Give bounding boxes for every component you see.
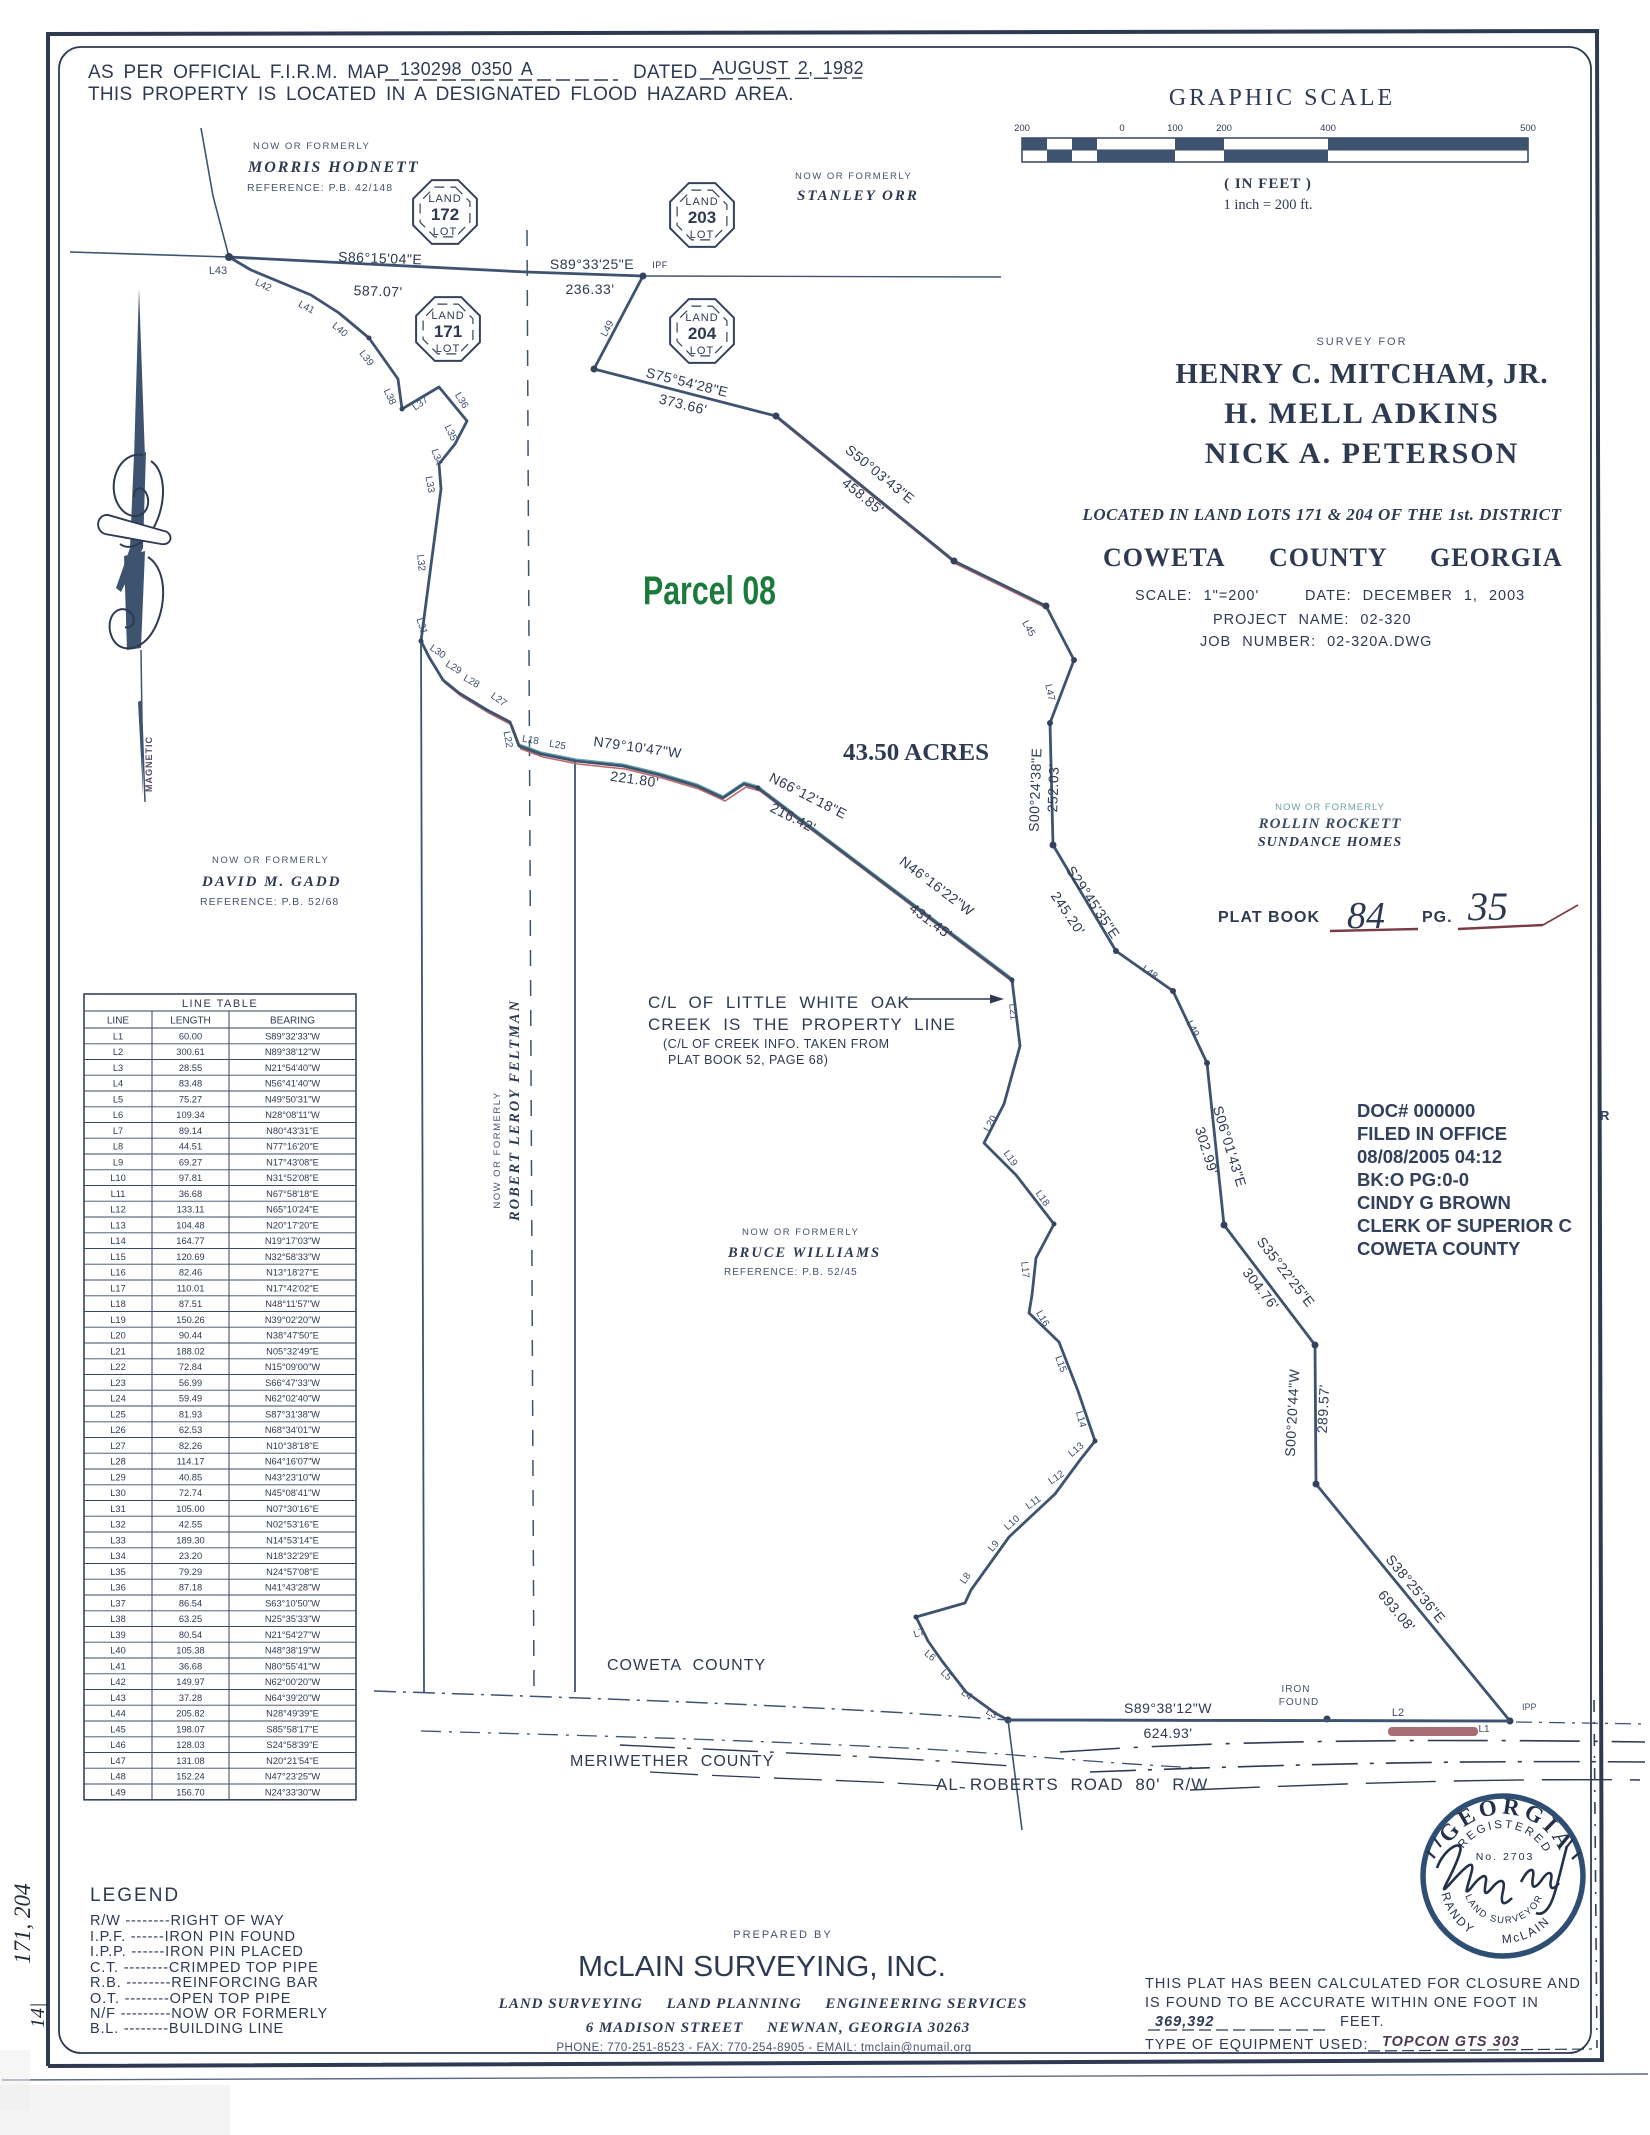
svg-text:164.77: 164.77	[176, 1236, 204, 1246]
svg-text:I.P.F. ------IRON PIN FOUND: I.P.F. ------IRON PIN FOUND	[90, 1929, 296, 1945]
svg-text:R/W --------RIGHT OF WAY: R/W --------RIGHT OF WAY	[90, 1913, 285, 1929]
svg-text:189.30: 189.30	[176, 1535, 204, 1545]
svg-text:82.46: 82.46	[179, 1268, 202, 1278]
svg-text:IRON: IRON	[1282, 1684, 1311, 1695]
svg-text:L25: L25	[110, 1409, 126, 1419]
svg-text:C/L OF LITTLE WHITE OAK: C/L OF LITTLE WHITE OAK	[648, 993, 910, 1012]
svg-text:35: 35	[1467, 884, 1508, 929]
svg-text:198.07: 198.07	[176, 1724, 204, 1734]
svg-text:L46: L46	[110, 1740, 126, 1750]
svg-text:L21: L21	[110, 1346, 126, 1356]
svg-text:DATED: DATED	[633, 62, 697, 83]
svg-text:100: 100	[1167, 123, 1183, 134]
svg-text:N21°54'27"W: N21°54'27"W	[265, 1630, 321, 1640]
svg-text:S86°15'04"E: S86°15'04"E	[338, 249, 423, 268]
svg-text:L15: L15	[110, 1252, 126, 1262]
svg-text:N68°34'01"W: N68°34'01"W	[265, 1425, 321, 1435]
svg-text:N13°18'27"E: N13°18'27"E	[266, 1268, 319, 1278]
svg-text:DATE: DECEMBER 1, 2003: DATE: DECEMBER 1, 2003	[1305, 588, 1525, 604]
svg-text:N20°21'54"E: N20°21'54"E	[266, 1756, 319, 1766]
svg-text:L33: L33	[110, 1535, 126, 1545]
svg-text:ROLLIN ROCKETT: ROLLIN ROCKETT	[1258, 816, 1402, 832]
svg-text:0: 0	[1119, 123, 1124, 134]
svg-text:120.69: 120.69	[176, 1252, 204, 1262]
svg-text:FOUND: FOUND	[1279, 1697, 1320, 1708]
svg-text:CREEK IS THE PROPERTY LINE: CREEK IS THE PROPERTY LINE	[648, 1015, 956, 1034]
svg-text:L17: L17	[1018, 1261, 1030, 1279]
svg-text:LAND: LAND	[428, 193, 461, 205]
svg-text:REFERENCE: P.B. 52/68: REFERENCE: P.B. 52/68	[200, 896, 339, 908]
svg-text:79.29: 79.29	[179, 1567, 202, 1577]
svg-text:SURVEY FOR: SURVEY FOR	[1316, 336, 1407, 348]
svg-text:40.85: 40.85	[179, 1472, 202, 1482]
svg-text:IPF: IPF	[652, 260, 668, 270]
svg-text:LAND: LAND	[685, 196, 718, 208]
svg-text:LINE TABLE: LINE TABLE	[182, 998, 258, 1010]
svg-text:109.34: 109.34	[176, 1110, 204, 1120]
svg-text:N05°32'49"E: N05°32'49"E	[266, 1346, 319, 1356]
svg-text:105.00: 105.00	[176, 1504, 204, 1514]
svg-text:N17°42'02"E: N17°42'02"E	[266, 1283, 319, 1293]
svg-text:87.18: 87.18	[179, 1583, 202, 1593]
svg-text:L38: L38	[110, 1614, 126, 1624]
svg-text:171, 204: 171, 204	[10, 1884, 35, 1965]
svg-text:N02°53'16"E: N02°53'16"E	[266, 1520, 319, 1530]
svg-text:252.03': 252.03'	[1044, 763, 1062, 813]
svg-text:MAGNETIC: MAGNETIC	[144, 736, 154, 792]
svg-text:L32: L32	[110, 1520, 126, 1530]
svg-text:N07°30'16"E: N07°30'16"E	[266, 1504, 319, 1514]
svg-text:N28°49'39"E: N28°49'39"E	[266, 1709, 319, 1719]
svg-text:L30: L30	[110, 1488, 126, 1498]
svg-text:O.T. --------OPEN TOP PIPE: O.T. --------OPEN TOP PIPE	[90, 1991, 291, 2007]
svg-text:N62°00'20"W: N62°00'20"W	[265, 1677, 321, 1687]
svg-text:JOB NUMBER: 02-320A.DWG: JOB NUMBER: 02-320A.DWG	[1200, 634, 1432, 650]
svg-text:C.T. --------CRIMPED TOP PIPE: C.T. --------CRIMPED TOP PIPE	[90, 1960, 319, 1976]
svg-text:87.51: 87.51	[179, 1299, 202, 1309]
svg-text:R: R	[1600, 1108, 1610, 1123]
svg-text:L1: L1	[1478, 1724, 1490, 1735]
svg-text:624.93': 624.93'	[1144, 1725, 1193, 1741]
svg-text:L1: L1	[113, 1031, 123, 1041]
svg-text:N65°10'24"E: N65°10'24"E	[266, 1205, 319, 1215]
svg-text:205.82: 205.82	[176, 1709, 204, 1719]
svg-text:188.02: 188.02	[176, 1346, 204, 1356]
svg-text:AS PER OFFICIAL F.I.R.M. MAP: AS PER OFFICIAL F.I.R.M. MAP	[88, 62, 389, 83]
svg-text:L3: L3	[113, 1063, 123, 1073]
svg-text:N19°17'03"W: N19°17'03"W	[265, 1236, 321, 1246]
svg-text:N62°02'40"W: N62°02'40"W	[265, 1394, 321, 1404]
svg-text:L23: L23	[110, 1378, 126, 1388]
svg-text:BK:O PG:0-0: BK:O PG:0-0	[1357, 1169, 1469, 1190]
svg-text:89.14: 89.14	[179, 1126, 202, 1136]
svg-text:28.55: 28.55	[179, 1063, 202, 1073]
svg-text:56.99: 56.99	[179, 1378, 202, 1388]
svg-text:14|: 14|	[27, 2003, 49, 2029]
svg-text:L17: L17	[110, 1283, 126, 1293]
svg-text:S85°58'17"E: S85°58'17"E	[266, 1724, 318, 1734]
svg-text:IS FOUND TO BE ACCURATE WITH: IS FOUND TO BE ACCURATE WITHIN ONE FOOT …	[1145, 1995, 1539, 2011]
svg-text:REFERENCE: P.B. 42/148: REFERENCE: P.B. 42/148	[247, 182, 393, 194]
svg-text:L18: L18	[110, 1299, 126, 1309]
svg-text:PG.: PG.	[1422, 909, 1453, 926]
svg-text:NOW OR FORMERLY: NOW OR FORMERLY	[253, 141, 370, 152]
svg-text:I.P.P. ------IRON PIN PLACED: I.P.P. ------IRON PIN PLACED	[90, 1944, 304, 1960]
svg-text:THIS PROPERTY IS LOCATED IN A: THIS PROPERTY IS LOCATED IN A DESIGNATED…	[88, 84, 794, 105]
svg-text:L31: L31	[110, 1504, 126, 1514]
svg-text:82.26: 82.26	[179, 1441, 202, 1451]
svg-text:156.70: 156.70	[176, 1787, 204, 1797]
svg-text:152.24: 152.24	[176, 1772, 204, 1782]
svg-text:86.54: 86.54	[179, 1598, 202, 1608]
svg-text:72.84: 72.84	[179, 1362, 202, 1372]
svg-text:SCALE: 1"=200': SCALE: 1"=200'	[1135, 588, 1259, 604]
svg-text:L16: L16	[110, 1268, 126, 1278]
svg-text:MORRIS HODNETT: MORRIS HODNETT	[247, 159, 420, 176]
svg-text:149.97: 149.97	[176, 1677, 204, 1687]
svg-text:S00°24'38"E: S00°24'38"E	[1026, 748, 1045, 833]
svg-text:L36: L36	[110, 1583, 126, 1593]
svg-text:AUGUST 2, 1982: AUGUST 2, 1982	[712, 58, 864, 78]
svg-text:DOC# 000000: DOC# 000000	[1357, 1100, 1475, 1121]
svg-text:L11: L11	[111, 1189, 126, 1199]
svg-text:( IN FEET ): ( IN FEET )	[1224, 176, 1312, 192]
svg-text:130298 0350 A: 130298 0350 A	[400, 59, 533, 79]
svg-text:CLERK OF SUPERIOR C: CLERK OF SUPERIOR C	[1357, 1215, 1572, 1236]
svg-text:N47°23'25"W: N47°23'25"W	[265, 1772, 321, 1782]
svg-text:L14: L14	[110, 1236, 126, 1246]
svg-text:N/F ---------NOW OR FORMERLY: N/F ---------NOW OR FORMERLY	[90, 2006, 328, 2022]
svg-text:LINE: LINE	[107, 1016, 130, 1027]
svg-text:L44: L44	[110, 1709, 126, 1719]
svg-text:L37: L37	[110, 1598, 126, 1608]
svg-text:PROJECT NAME: 02-320: PROJECT NAME: 02-320	[1213, 612, 1412, 628]
svg-text:105.38: 105.38	[176, 1646, 204, 1656]
svg-text:L35: L35	[110, 1567, 126, 1577]
svg-text:N38°47'50"E: N38°47'50"E	[266, 1331, 319, 1341]
svg-text:LOT: LOT	[436, 343, 460, 355]
svg-text:N31°52'08"E: N31°52'08"E	[266, 1173, 319, 1183]
svg-text:NOW OR FORMERLY: NOW OR FORMERLY	[212, 855, 329, 866]
svg-text:BEARING: BEARING	[270, 1016, 315, 1027]
svg-text:L9: L9	[113, 1157, 123, 1167]
svg-text:LEGEND: LEGEND	[90, 1885, 180, 1906]
svg-text:PREPARED BY: PREPARED BY	[733, 1929, 832, 1941]
svg-text:N41°43'28"W: N41°43'28"W	[265, 1583, 321, 1593]
svg-text:400: 400	[1320, 123, 1336, 134]
svg-text:CINDY G BROWN: CINDY G BROWN	[1357, 1192, 1511, 1213]
svg-text:S89°32'33"W: S89°32'33"W	[265, 1031, 320, 1041]
svg-text:587.07': 587.07'	[353, 282, 403, 300]
svg-text:L27: L27	[110, 1441, 126, 1451]
svg-text:L8: L8	[113, 1142, 123, 1152]
svg-text:289.57': 289.57'	[1314, 1384, 1333, 1434]
svg-text:37.28: 37.28	[179, 1693, 202, 1703]
svg-text:N10°38'18"E: N10°38'18"E	[266, 1441, 319, 1451]
svg-text:LAND: LAND	[685, 312, 718, 324]
svg-text:80.54: 80.54	[179, 1630, 202, 1640]
svg-text:N48°38'19"W: N48°38'19"W	[265, 1646, 321, 1656]
svg-text:131.08: 131.08	[176, 1756, 204, 1766]
svg-text:LOT: LOT	[690, 345, 714, 357]
svg-text:NOW OR FORMERLY: NOW OR FORMERLY	[492, 1091, 503, 1208]
svg-text:S66°47'33"W: S66°47'33"W	[265, 1378, 320, 1388]
svg-text:TYPE OF EQUIPMENT USED:: TYPE OF EQUIPMENT USED:	[1145, 2037, 1368, 2053]
svg-text:N25°35'33"W: N25°35'33"W	[265, 1614, 321, 1624]
svg-text:N39°02'20"W: N39°02'20"W	[265, 1315, 321, 1325]
svg-text:MERIWETHER COUNTY: MERIWETHER COUNTY	[570, 1753, 774, 1770]
svg-text:N18°32'29"E: N18°32'29"E	[266, 1551, 319, 1561]
svg-text:L49: L49	[110, 1787, 126, 1797]
svg-text:L43: L43	[209, 265, 227, 277]
svg-text:L40: L40	[110, 1646, 126, 1656]
svg-text:REFERENCE: P.B. 52/45: REFERENCE: P.B. 52/45	[724, 1267, 858, 1278]
svg-text:N80°55'41"W: N80°55'41"W	[265, 1661, 321, 1671]
svg-text:SUNDANCE HOMES: SUNDANCE HOMES	[1258, 835, 1402, 850]
svg-text:ROBERT LEROY FELTMAN: ROBERT LEROY FELTMAN	[507, 999, 523, 1222]
svg-text:N77°16'20"E: N77°16'20"E	[266, 1142, 319, 1152]
svg-text:200: 200	[1216, 123, 1232, 134]
svg-text:L39: L39	[110, 1630, 126, 1640]
svg-text:GRAPHIC SCALE: GRAPHIC SCALE	[1169, 85, 1395, 111]
svg-text:TOPCON GTS 303: TOPCON GTS 303	[1382, 2034, 1520, 2050]
svg-text:N24°33'30"W: N24°33'30"W	[265, 1787, 321, 1797]
svg-text:N21°54'40"W: N21°54'40"W	[265, 1063, 321, 1073]
svg-text:150.26: 150.26	[176, 1315, 204, 1325]
svg-text:90.44: 90.44	[179, 1331, 202, 1341]
svg-text:83.48: 83.48	[179, 1079, 202, 1089]
svg-text:204: 204	[688, 324, 717, 343]
svg-text:L24: L24	[110, 1394, 126, 1404]
svg-text:300.61: 300.61	[176, 1047, 204, 1057]
svg-text:COUNTY: COUNTY	[1269, 543, 1388, 572]
svg-text:L29: L29	[110, 1472, 126, 1482]
svg-text:N32°58'33"W: N32°58'33"W	[265, 1252, 321, 1262]
svg-text:LENGTH: LENGTH	[170, 1016, 211, 1027]
svg-text:L10: L10	[110, 1173, 126, 1183]
svg-text:171: 171	[434, 322, 462, 341]
svg-text:L7: L7	[113, 1126, 123, 1136]
svg-text:N14°53'14"E: N14°53'14"E	[266, 1535, 319, 1545]
svg-text:N15°09'00"W: N15°09'00"W	[265, 1362, 321, 1372]
svg-text:LAND SURVEYING LAND PLANNI: LAND SURVEYING LAND PLANNING ENGINEERING…	[498, 1996, 1028, 2012]
svg-text:IPP: IPP	[1522, 1702, 1537, 1712]
svg-text:236.33': 236.33'	[566, 281, 615, 297]
svg-text:(C/L OF CREEK INFO. TAKEN FROM: (C/L OF CREEK INFO. TAKEN FROM	[663, 1037, 890, 1051]
svg-text:36.68: 36.68	[179, 1189, 202, 1199]
svg-text:NOW OR FORMERLY: NOW OR FORMERLY	[742, 1227, 859, 1238]
svg-text:N80°43'31"E: N80°43'31"E	[266, 1126, 319, 1136]
svg-text:COWETA COUNTY: COWETA COUNTY	[1357, 1238, 1521, 1259]
svg-text:LAND: LAND	[431, 310, 464, 322]
svg-text:LOCATED IN LAND LOTS 171 & 204: LOCATED IN LAND LOTS 171 & 204 OF THE 1s…	[1081, 505, 1561, 524]
svg-text:L41: L41	[110, 1661, 126, 1671]
svg-text:59.49: 59.49	[179, 1394, 202, 1404]
svg-text:L12: L12	[110, 1205, 126, 1215]
svg-text:N64°16'07"W: N64°16'07"W	[265, 1457, 321, 1467]
svg-text:69.27: 69.27	[179, 1157, 202, 1167]
svg-text:L6: L6	[113, 1110, 123, 1120]
svg-text:128.03: 128.03	[176, 1740, 204, 1750]
svg-text:NOW OR FORMERLY: NOW OR FORMERLY	[795, 171, 912, 182]
svg-text:COWETA: COWETA	[1103, 543, 1226, 572]
svg-text:No. 2703: No. 2703	[1476, 1851, 1535, 1863]
svg-text:PLAT BOOK: PLAT BOOK	[1218, 909, 1320, 926]
svg-text:STANLEY ORR: STANLEY ORR	[797, 188, 919, 204]
svg-text:62.53: 62.53	[179, 1425, 202, 1435]
svg-text:203: 203	[688, 208, 716, 227]
svg-text:75.27: 75.27	[179, 1094, 202, 1104]
svg-text:H. MELL ADKINS: H. MELL ADKINS	[1224, 397, 1500, 430]
svg-text:S89°33'25"E: S89°33'25"E	[550, 256, 634, 272]
svg-text:B.L. --------BUILDING LINE: B.L. --------BUILDING LINE	[90, 2021, 284, 2037]
svg-text:N49°50'31"W: N49°50'31"W	[265, 1094, 321, 1104]
svg-text:N45°08'41"W: N45°08'41"W	[265, 1488, 321, 1498]
svg-text:500: 500	[1520, 123, 1536, 134]
svg-text:LOT: LOT	[690, 229, 714, 241]
svg-text:L22: L22	[110, 1362, 126, 1372]
svg-text:N43°23'10"W: N43°23'10"W	[265, 1472, 321, 1482]
svg-text:S63°10'50"W: S63°10'50"W	[265, 1598, 320, 1608]
svg-text:L43: L43	[110, 1693, 126, 1703]
svg-text:COWETA COUNTY: COWETA COUNTY	[607, 1657, 766, 1674]
svg-text:36.68: 36.68	[179, 1661, 202, 1671]
svg-text:McLAIN SURVEYING, INC.: McLAIN SURVEYING, INC.	[578, 1951, 946, 1983]
svg-text:N64°39'20"W: N64°39'20"W	[265, 1693, 321, 1703]
svg-text:N20°17'20"E: N20°17'20"E	[266, 1220, 319, 1230]
svg-text:L32: L32	[414, 554, 427, 572]
svg-text:L47: L47	[110, 1756, 126, 1766]
svg-text:N17°43'08"E: N17°43'08"E	[266, 1157, 319, 1167]
svg-text:L2: L2	[113, 1047, 123, 1057]
svg-text:N56°41'40"W: N56°41'40"W	[265, 1079, 321, 1089]
svg-text:172: 172	[431, 205, 459, 224]
svg-text:L21: L21	[1006, 1003, 1018, 1021]
svg-text:AL ROBERTS ROAD 80' R/W: AL ROBERTS ROAD 80' R/W	[936, 1775, 1208, 1794]
svg-text:DAVID M. GADD: DAVID M. GADD	[201, 874, 342, 890]
svg-text:PLAT BOOK 52, PAGE 68): PLAT BOOK 52, PAGE 68)	[668, 1053, 828, 1067]
svg-text:44.51: 44.51	[179, 1142, 202, 1152]
svg-text:60.00: 60.00	[179, 1031, 202, 1041]
svg-text:LOT: LOT	[433, 226, 457, 238]
svg-text:BRUCE WILLIAMS: BRUCE WILLIAMS	[727, 1245, 881, 1261]
svg-text:N24°57'08"E: N24°57'08"E	[266, 1567, 319, 1577]
svg-text:L2: L2	[1392, 1707, 1404, 1719]
svg-text:S89°38'12"W: S89°38'12"W	[1124, 1700, 1212, 1716]
svg-text:R.B. --------REINFORCING BAR: R.B. --------REINFORCING BAR	[90, 1975, 319, 1991]
svg-text:NICK A. PETERSON: NICK A. PETERSON	[1205, 437, 1520, 470]
svg-text:L19: L19	[110, 1315, 126, 1325]
svg-text:110.01: 110.01	[177, 1283, 205, 1293]
svg-text:N28°08'11"W: N28°08'11"W	[265, 1110, 320, 1120]
svg-text:N89°38'12"W: N89°38'12"W	[265, 1047, 321, 1057]
svg-text:GEORGIA: GEORGIA	[1430, 543, 1563, 572]
svg-text:1 inch = 200 ft.: 1 inch = 200 ft.	[1223, 197, 1312, 213]
svg-text:43.50 ACRES: 43.50 ACRES	[843, 740, 989, 766]
svg-text:THIS PLAT HAS BEEN CALCULATED: THIS PLAT HAS BEEN CALCULATED FOR CLOSUR…	[1145, 1976, 1581, 1992]
svg-text:23.20: 23.20	[179, 1551, 202, 1561]
svg-text:42.55: 42.55	[179, 1520, 202, 1530]
svg-text:133.11: 133.11	[177, 1205, 205, 1215]
svg-text:HENRY C. MITCHAM, JR.: HENRY C. MITCHAM, JR.	[1175, 358, 1548, 390]
svg-text:L42: L42	[110, 1677, 126, 1687]
svg-text:FILED IN OFFICE: FILED IN OFFICE	[1357, 1123, 1507, 1144]
svg-text:Parcel 08: Parcel 08	[643, 569, 776, 613]
svg-text:72.74: 72.74	[179, 1488, 202, 1498]
svg-text:6 MADISON STREET NEWNAN, G: 6 MADISON STREET NEWNAN, GEORGIA 30263	[586, 2020, 971, 2036]
svg-text:114.17: 114.17	[177, 1457, 205, 1467]
svg-text:PHONE: 770-251-8523 - FAX:: PHONE: 770-251-8523 - FAX: 770-254-8905 …	[556, 2042, 971, 2054]
svg-text:L34: L34	[110, 1551, 126, 1561]
svg-text:L4: L4	[113, 1079, 123, 1089]
svg-text:104.48: 104.48	[176, 1220, 204, 1230]
svg-text:08/08/2005 04:12: 08/08/2005 04:12	[1357, 1146, 1502, 1167]
svg-text:N67°58'18"E: N67°58'18"E	[266, 1189, 319, 1199]
svg-text:L26: L26	[110, 1425, 126, 1435]
svg-text:S87°31'38"W: S87°31'38"W	[265, 1409, 320, 1419]
svg-text:S24°58'39"E: S24°58'39"E	[266, 1740, 318, 1750]
svg-text:200: 200	[1014, 123, 1030, 134]
svg-text:L20: L20	[110, 1331, 126, 1341]
svg-text:L45: L45	[110, 1724, 126, 1734]
svg-text:369,392: 369,392	[1155, 2014, 1214, 2030]
svg-text:81.93: 81.93	[179, 1409, 202, 1419]
svg-text:97.81: 97.81	[179, 1173, 202, 1183]
svg-text:L5: L5	[113, 1094, 123, 1104]
svg-text:N48°11'57"W: N48°11'57"W	[265, 1299, 320, 1309]
svg-text:NOW OR FORMERLY: NOW OR FORMERLY	[1275, 802, 1385, 813]
svg-text:L28: L28	[110, 1457, 126, 1467]
svg-text:L13: L13	[110, 1220, 126, 1230]
svg-text:FEET.: FEET.	[1340, 2014, 1384, 2030]
svg-text:63.25: 63.25	[179, 1614, 202, 1624]
svg-text:L48: L48	[110, 1772, 126, 1782]
